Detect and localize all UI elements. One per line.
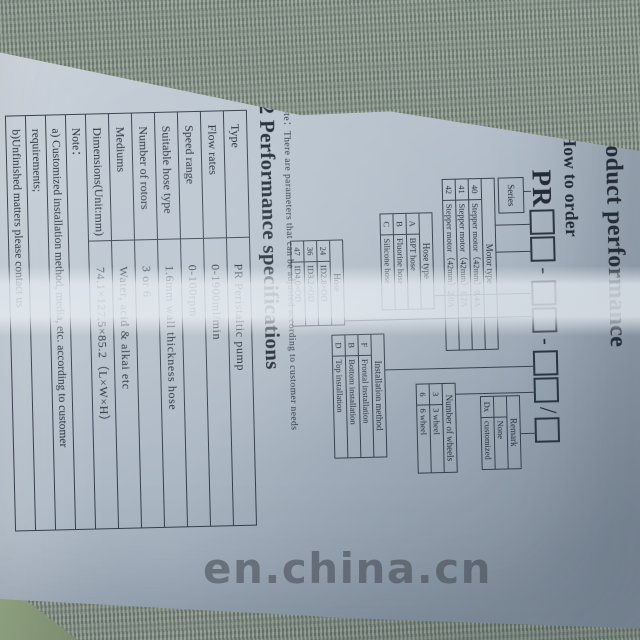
- code-prefix: PR: [530, 169, 553, 208]
- table-cell: [493, 396, 507, 417]
- connector-series: [524, 191, 531, 192]
- table-cell: F: [358, 334, 372, 355]
- table-cell: D: [332, 335, 346, 356]
- photographed-manual-page: 2 Product performance 2.1 How to order P…: [0, 0, 640, 640]
- code-slash: /: [534, 406, 561, 413]
- table-cell: Suitable hose type: [154, 112, 180, 239]
- table-cell: B: [345, 335, 359, 356]
- table-cell: Flow rates: [200, 111, 226, 238]
- table-cell: None: [494, 417, 508, 469]
- table-cell: 41: [455, 179, 469, 200]
- code-box-installation: [533, 351, 559, 377]
- table-cell: Type: [223, 110, 249, 237]
- table-cell: Dimensions(Unit:mm): [85, 114, 111, 241]
- watermark-band: en.china.cn: [0, 266, 640, 336]
- table-row: None: [493, 396, 508, 469]
- table-cell: A: [406, 213, 420, 234]
- table-cell: Mediums: [108, 113, 134, 240]
- table-header-row: Number of wheels: [442, 383, 457, 472]
- table-cell: B: [393, 213, 407, 234]
- table-row: 66 wheel: [416, 384, 431, 473]
- table-cell: 3 wheel: [430, 405, 445, 473]
- table-cell: Speed range: [177, 111, 203, 238]
- table-cell: 42: [442, 179, 456, 200]
- code-box-motor-1: [530, 209, 556, 235]
- remark-header: Remark: [506, 396, 521, 469]
- table-cell: Dx: [480, 396, 494, 417]
- connector-installation: [385, 366, 535, 371]
- table-row: 33 wheel: [429, 384, 444, 473]
- code-hyphen-2: -: [534, 338, 557, 345]
- installation-method-table: Installation method FFrontal installatio…: [331, 333, 387, 458]
- table-cell: 6 wheel: [417, 405, 432, 473]
- table-cell: Frontal installation: [358, 355, 373, 457]
- table-cell: customized: [481, 417, 495, 469]
- code-box-remark: [535, 417, 561, 443]
- code-box-motor-2: [531, 236, 557, 262]
- table-header-row: Remark: [506, 396, 521, 469]
- wheels-header: Number of wheels: [442, 383, 457, 472]
- table-cell: 3: [429, 384, 443, 405]
- connector-motor-2: [496, 251, 532, 253]
- watermark-text: en.china.cn: [203, 548, 492, 590]
- code-box-wheels: [534, 378, 560, 404]
- table-cell: C: [380, 214, 394, 235]
- table-cell: 40: [468, 179, 482, 200]
- table-cell: 24: [317, 240, 331, 261]
- table-cell: 6: [416, 384, 430, 405]
- connector-wheels: [456, 392, 536, 395]
- remark-table: Remark NoneDxcustomized: [480, 395, 522, 470]
- table-cell: Number of rotors: [131, 112, 157, 239]
- connector-motor-1: [496, 224, 532, 226]
- table-cell: 36: [304, 241, 318, 262]
- table-cell: Top installation: [332, 356, 347, 458]
- series-box: Series: [498, 177, 525, 214]
- number-of-wheels-table: Number of wheels 33 wheel66 wheel: [416, 383, 458, 474]
- table-cell: Bottom installation: [345, 356, 360, 458]
- table-row: Dxcustomized: [480, 396, 495, 469]
